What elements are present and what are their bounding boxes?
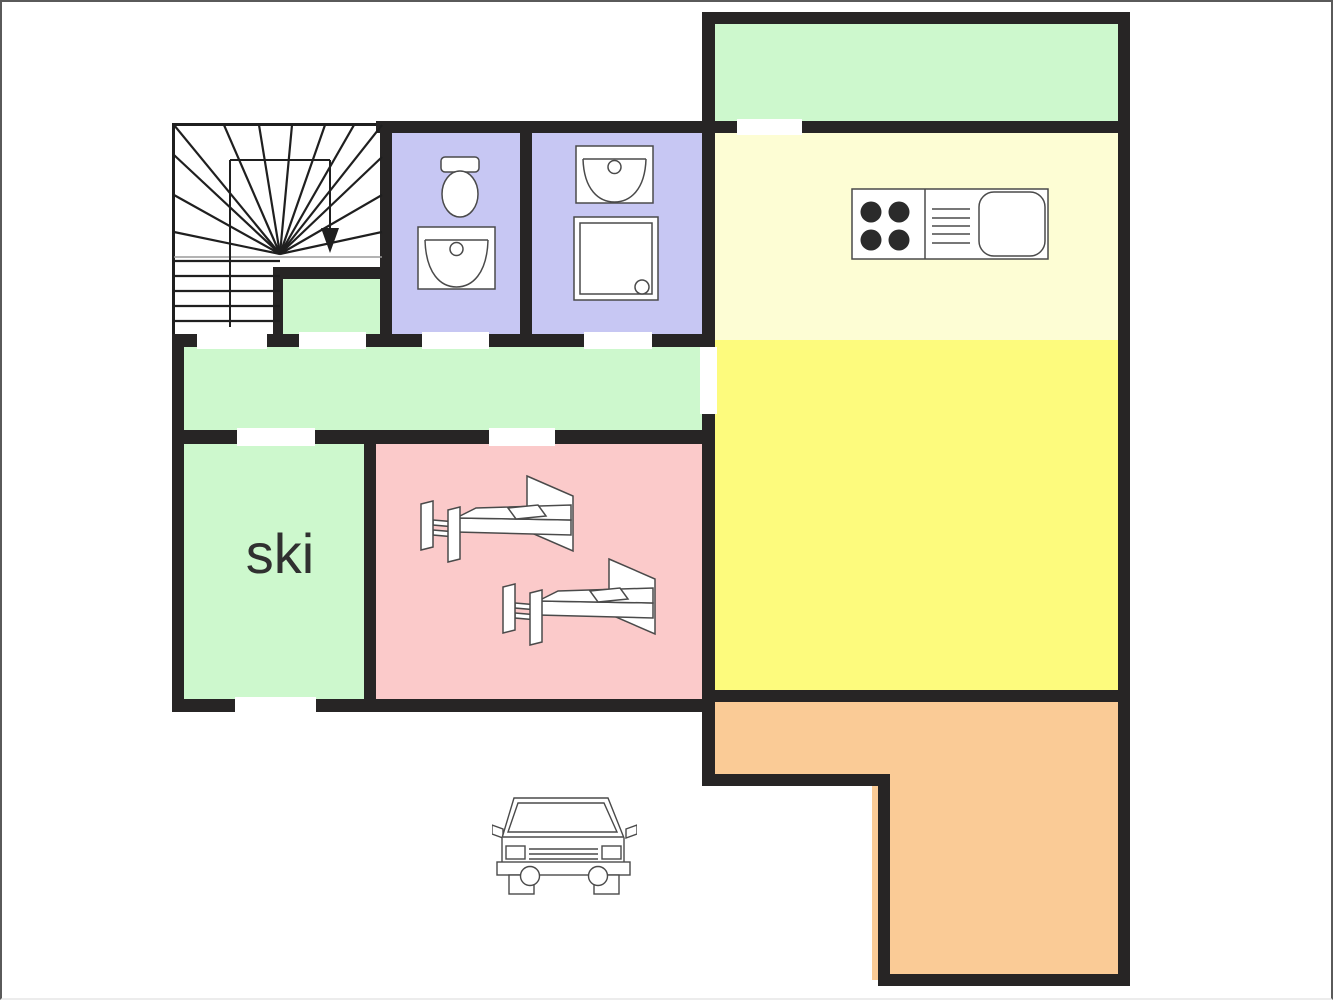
floor-plan: ski xyxy=(0,0,1333,1000)
washbasin-icon xyxy=(418,227,495,289)
stairs-icon xyxy=(170,120,390,348)
wall xyxy=(878,974,1130,986)
bed-icon xyxy=(420,474,580,566)
wall xyxy=(1118,12,1130,986)
shower-icon xyxy=(574,217,658,300)
toilet-icon xyxy=(441,157,479,217)
door-opening-ski-room xyxy=(237,428,315,446)
door-opening-balcony xyxy=(737,119,802,135)
room-balcony xyxy=(708,18,1124,127)
car-icon xyxy=(492,792,637,902)
ski-room-label: ski xyxy=(238,526,322,582)
stove-sink-unit-icon xyxy=(850,186,1052,264)
bed-icon xyxy=(502,557,662,649)
wall xyxy=(172,334,184,712)
wall xyxy=(364,430,376,712)
door-opening-bedroom xyxy=(489,428,555,446)
room-hallway xyxy=(178,340,708,436)
wall xyxy=(878,774,890,986)
room-terrace-upper xyxy=(708,696,884,780)
room-terrace-lower xyxy=(872,696,1124,980)
door-opening-living xyxy=(700,347,717,414)
wall xyxy=(702,690,1130,702)
room-living xyxy=(708,340,1124,696)
wall xyxy=(702,12,1130,24)
down-arrow-icon xyxy=(321,228,339,253)
door-opening-entrance xyxy=(235,697,316,714)
washbasin-icon xyxy=(576,146,653,203)
wall xyxy=(702,774,890,786)
bathroom-fixtures xyxy=(382,122,712,347)
